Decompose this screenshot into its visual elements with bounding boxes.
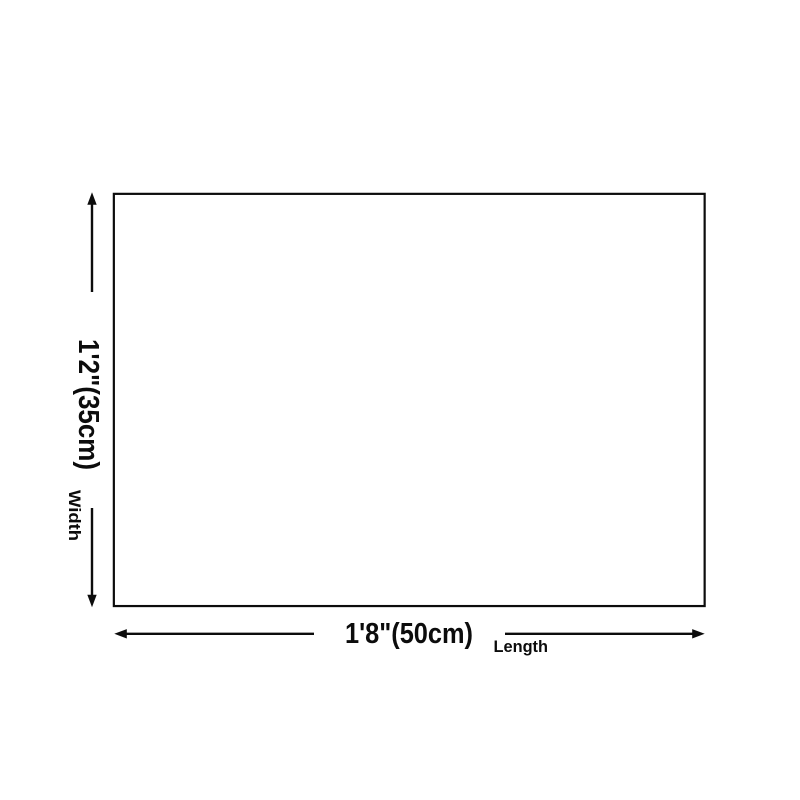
svg-text:Width: Width — [65, 490, 84, 541]
svg-text:Length: Length — [494, 637, 549, 656]
svg-text:1'2"(35cm): 1'2"(35cm) — [72, 339, 104, 470]
svg-text:1'8"(50cm): 1'8"(50cm) — [345, 618, 473, 650]
